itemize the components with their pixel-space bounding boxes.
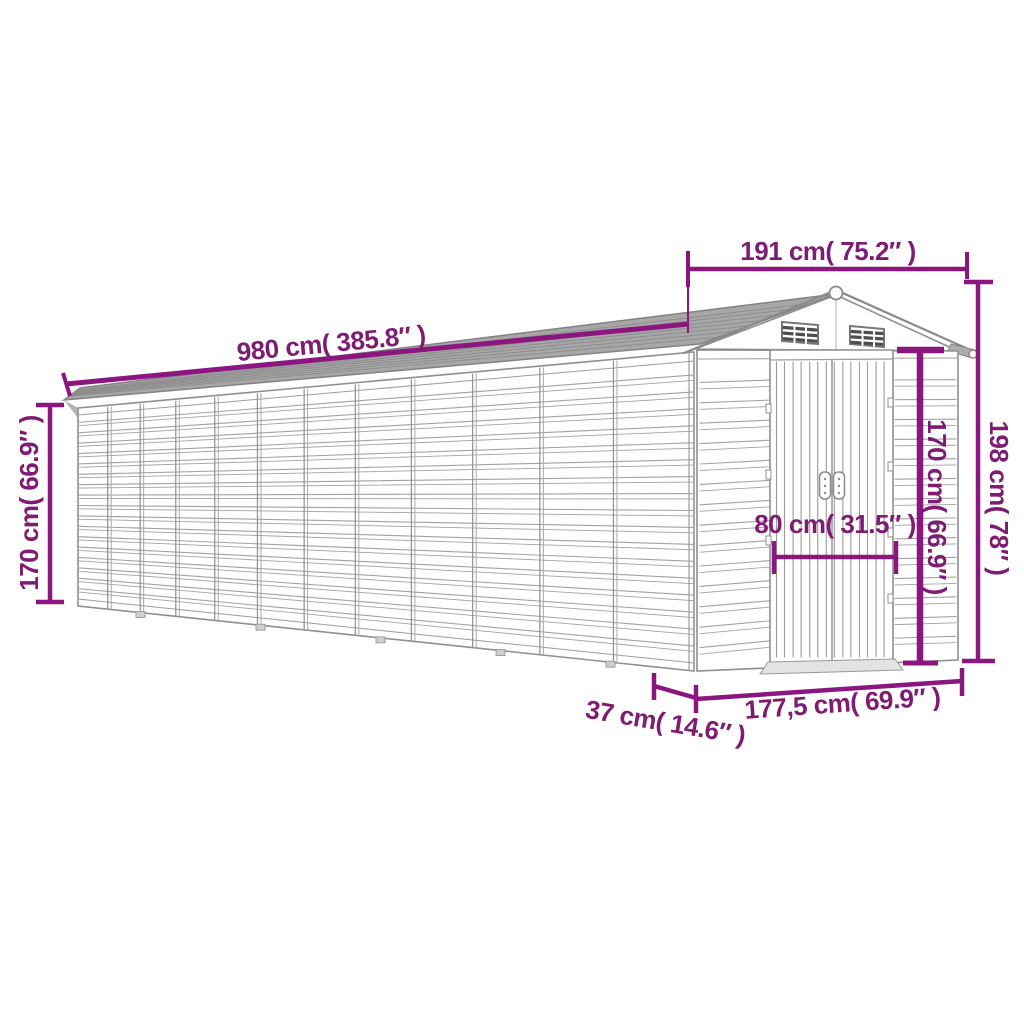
shed-illustration [64, 287, 977, 675]
gable-vent-left [782, 322, 818, 344]
dimension-base-width: 177,5 cm( 69.9″ ) [696, 668, 962, 725]
door-threshold [760, 659, 903, 674]
side-wall [78, 352, 694, 671]
dimension-base-width-label: 177,5 cm( 69.9″ ) [743, 681, 941, 725]
dimension-front-width-label: 191 cm( 75.2″ ) [740, 236, 916, 266]
dimension-base-depth-label: 37 cm( 14.6″ ) [583, 694, 747, 750]
dimension-door-height-label: 170 cm( 66.9″ ) [922, 419, 952, 595]
dimension-door-width-label: 80 cm( 31.5″ ) [754, 509, 916, 539]
dimension-total-height: 198 cm( 78″ ) [962, 282, 1014, 661]
dimension-base-depth: 37 cm( 14.6″ ) [583, 673, 747, 750]
ridge-finial [830, 287, 843, 300]
dimension-total-height-label: 198 cm( 78″ ) [984, 421, 1014, 576]
gable-vent-right [850, 326, 884, 347]
dimension-side-height: 170 cm( 66.9″ ) [14, 405, 64, 602]
diagram-canvas: 191 cm( 75.2″ ) 980 cm( 385.8″ ) 170 cm(… [0, 0, 1024, 1024]
dimension-side-height-label: 170 cm( 66.9″ ) [14, 415, 44, 591]
shed-dimension-diagram: 191 cm( 75.2″ ) 980 cm( 385.8″ ) 170 cm(… [0, 0, 1024, 1024]
